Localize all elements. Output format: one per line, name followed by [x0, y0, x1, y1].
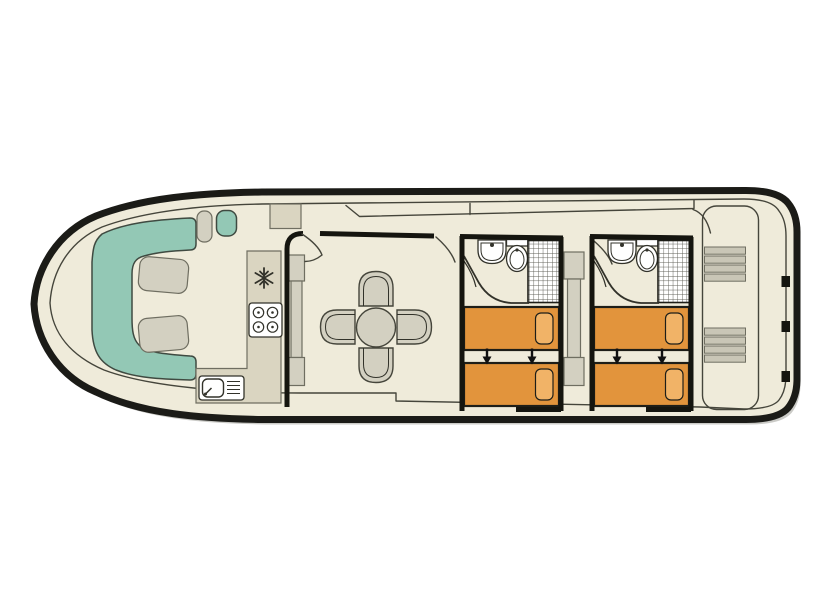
chair [359, 272, 393, 307]
chair [359, 348, 393, 383]
backrest-cushion [138, 315, 190, 353]
boat-deck-plan [0, 0, 816, 612]
backrest-cushion [138, 256, 190, 294]
wardrobe [564, 252, 584, 386]
chair [321, 310, 356, 344]
dining-table [357, 308, 396, 347]
boat-deck-plan-page [0, 0, 816, 612]
chair [397, 310, 432, 344]
helm-seat [197, 211, 212, 242]
helm-console [270, 204, 301, 229]
side-seat [217, 211, 237, 237]
stove-icon [249, 303, 282, 337]
sink-icon [199, 376, 244, 400]
sideboard [288, 255, 305, 386]
